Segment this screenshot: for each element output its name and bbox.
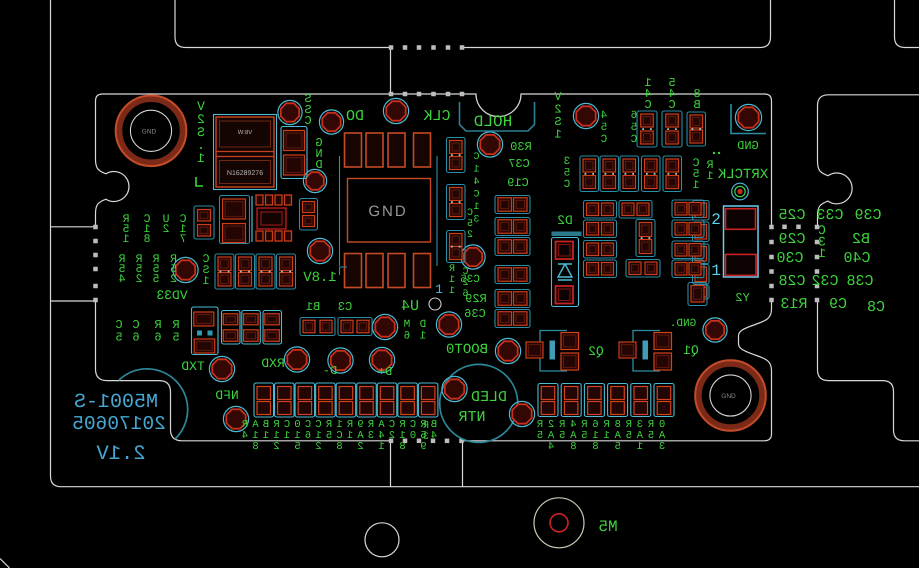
svg-text:5: 5 [172, 331, 179, 345]
svg-text:20170605: 20170605 [72, 413, 166, 435]
svg-text:C40: C40 [843, 250, 870, 267]
svg-text:1: 1 [473, 165, 479, 176]
svg-text:1: 1 [473, 202, 479, 213]
svg-text:0: 0 [410, 430, 416, 442]
svg-text:4: 4 [548, 441, 554, 453]
svg-text:5: 5 [615, 441, 621, 453]
svg-text:Y2: Y2 [735, 291, 749, 305]
svg-text:4: 4 [118, 273, 125, 286]
svg-text:6: 6 [154, 331, 161, 345]
svg-text:U4: U4 [401, 298, 419, 315]
svg-text:1: 1 [711, 262, 721, 280]
svg-text:1: 1 [449, 286, 455, 297]
svg-text:9: 9 [420, 441, 426, 453]
svg-text:1: 1 [122, 233, 129, 246]
svg-text:C: C [304, 114, 311, 128]
svg-text:1: 1 [554, 128, 561, 142]
svg-text:8: 8 [570, 441, 576, 453]
svg-text:1: 1 [202, 275, 209, 288]
svg-text:DLED: DLED [471, 389, 507, 406]
svg-text:2: 2 [162, 223, 169, 236]
svg-text:2: 2 [170, 273, 177, 286]
svg-text:1: 1 [378, 441, 384, 453]
svg-text:D-: D- [323, 364, 337, 378]
svg-text:3: 3 [473, 215, 479, 226]
svg-text:8: 8 [252, 441, 258, 453]
svg-text:GND.: GND. [670, 318, 696, 330]
svg-text:8: 8 [592, 441, 598, 453]
svg-text:6: 6 [132, 331, 139, 345]
svg-text:C9: C9 [829, 296, 847, 313]
svg-text:5: 5 [564, 168, 571, 180]
svg-text:R30: R30 [510, 140, 532, 154]
svg-text:5: 5 [648, 430, 654, 442]
svg-text:1: 1 [347, 430, 353, 442]
svg-text:D: D [419, 319, 426, 331]
svg-text:2: 2 [357, 441, 363, 453]
svg-text:C32: C32 [811, 273, 838, 290]
svg-text:1: 1 [449, 275, 455, 286]
svg-text:1: 1 [706, 170, 713, 183]
svg-text:2: 2 [711, 211, 721, 229]
svg-text:5: 5 [152, 273, 159, 286]
svg-text:5: 5 [326, 430, 332, 442]
svg-text:C29: C29 [778, 231, 805, 248]
svg-text:2: 2 [315, 441, 321, 453]
svg-text:BOOT0: BOOT0 [446, 342, 488, 358]
svg-text:5: 5 [626, 430, 632, 442]
svg-text:DO: DO [346, 108, 364, 125]
svg-text:2: 2 [467, 230, 473, 241]
svg-text:R13: R13 [780, 296, 807, 313]
svg-text:5: 5 [601, 122, 608, 134]
svg-text:3: 3 [659, 441, 665, 453]
svg-text:C37: C37 [508, 157, 530, 171]
svg-text:C: C [473, 190, 479, 201]
svg-text:6: 6 [462, 289, 468, 300]
svg-text:8: 8 [399, 441, 405, 453]
svg-text:Q2: Q2 [588, 344, 604, 359]
svg-text:NTR: NTR [458, 409, 485, 426]
svg-text:M5: M5 [598, 518, 617, 536]
svg-text:4: 4 [431, 430, 437, 442]
svg-text:1.8V: 1.8V [303, 270, 337, 286]
svg-text:GND: GND [142, 128, 157, 135]
svg-text:B1: B1 [306, 300, 320, 314]
svg-text:D+: D+ [378, 365, 392, 379]
svg-text:8: 8 [336, 441, 342, 453]
svg-text:GND: GND [721, 393, 736, 400]
svg-text:C: C [473, 152, 479, 163]
svg-text:4: 4 [242, 430, 248, 442]
svg-text:GND: GND [368, 203, 407, 220]
svg-text:7: 7 [180, 233, 187, 246]
svg-text:3: 3 [368, 430, 374, 442]
svg-text:6: 6 [631, 110, 638, 122]
svg-text:C8: C8 [867, 299, 885, 316]
svg-text:C28: C28 [778, 273, 805, 290]
svg-text:5: 5 [294, 441, 300, 453]
svg-text:C39: C39 [854, 207, 881, 224]
svg-text:D2: D2 [557, 213, 573, 228]
svg-text:2: 2 [135, 273, 142, 286]
svg-text:2: 2 [389, 430, 395, 442]
svg-text:5: 5 [467, 219, 473, 230]
svg-text:W:8V: W:8V [238, 129, 253, 136]
svg-text:1: 1 [197, 151, 205, 166]
svg-text:5: 5 [559, 430, 565, 442]
svg-text:XRTCLK: XRTCLK [717, 167, 768, 183]
svg-text:5: 5 [115, 331, 122, 345]
svg-text:1: 1 [692, 179, 699, 192]
svg-text:C: C [563, 179, 570, 191]
svg-text:1: 1 [637, 441, 643, 453]
svg-text:Q1: Q1 [683, 343, 699, 358]
svg-text:1: 1 [284, 430, 290, 442]
svg-text:5: 5 [581, 430, 587, 442]
svg-text:B2: B2 [852, 231, 870, 248]
svg-text:C25: C25 [778, 207, 805, 224]
svg-text:M5001-S: M5001-S [74, 391, 158, 414]
svg-text:5: 5 [631, 122, 638, 134]
svg-text:C19: C19 [507, 176, 529, 190]
svg-text:2: 2 [462, 278, 468, 289]
svg-text:C33: C33 [816, 207, 843, 224]
svg-text:HOLD: HOLD [474, 113, 512, 131]
svg-text:2: 2 [273, 441, 279, 453]
svg-text:C36: C36 [464, 307, 486, 321]
svg-text:6: 6 [404, 331, 411, 343]
svg-text:N16289276: N16289276 [227, 170, 263, 177]
svg-text:C: C [467, 208, 473, 219]
svg-text:C: C [630, 134, 637, 146]
svg-text:1: 1 [263, 430, 269, 442]
svg-text:6: 6 [305, 430, 311, 442]
svg-text:2.1V: 2.1V [96, 443, 146, 466]
svg-text:C: C [644, 98, 651, 112]
svg-text:C30: C30 [776, 250, 803, 267]
svg-text:C38: C38 [846, 273, 873, 290]
svg-text:1: 1 [419, 331, 426, 343]
svg-text:4: 4 [473, 177, 479, 188]
svg-text:CLK: CLK [423, 108, 450, 125]
svg-text:GND: GND [737, 139, 759, 153]
svg-text:TXD: TXD [181, 359, 205, 374]
svg-text:3: 3 [564, 156, 571, 168]
svg-text:VD33: VD33 [156, 288, 187, 303]
svg-text:R: R [449, 264, 455, 275]
svg-text:RXD: RXD [261, 356, 285, 371]
svg-text:1: 1 [435, 282, 443, 297]
svg-text:NFD: NFD [215, 388, 239, 403]
svg-text:1: 1 [818, 246, 826, 261]
svg-text:8: 8 [143, 233, 150, 246]
svg-text:5: 5 [537, 430, 543, 442]
svg-text:C: C [668, 98, 675, 112]
svg-text:B: B [693, 98, 700, 112]
svg-text:M: M [404, 319, 411, 331]
svg-text:D: D [315, 158, 322, 172]
svg-text:C: C [462, 267, 468, 278]
svg-text:1: 1 [603, 430, 609, 442]
svg-text:C: C [600, 134, 607, 146]
svg-text:C3: C3 [338, 300, 352, 314]
svg-text:4: 4 [600, 110, 607, 122]
